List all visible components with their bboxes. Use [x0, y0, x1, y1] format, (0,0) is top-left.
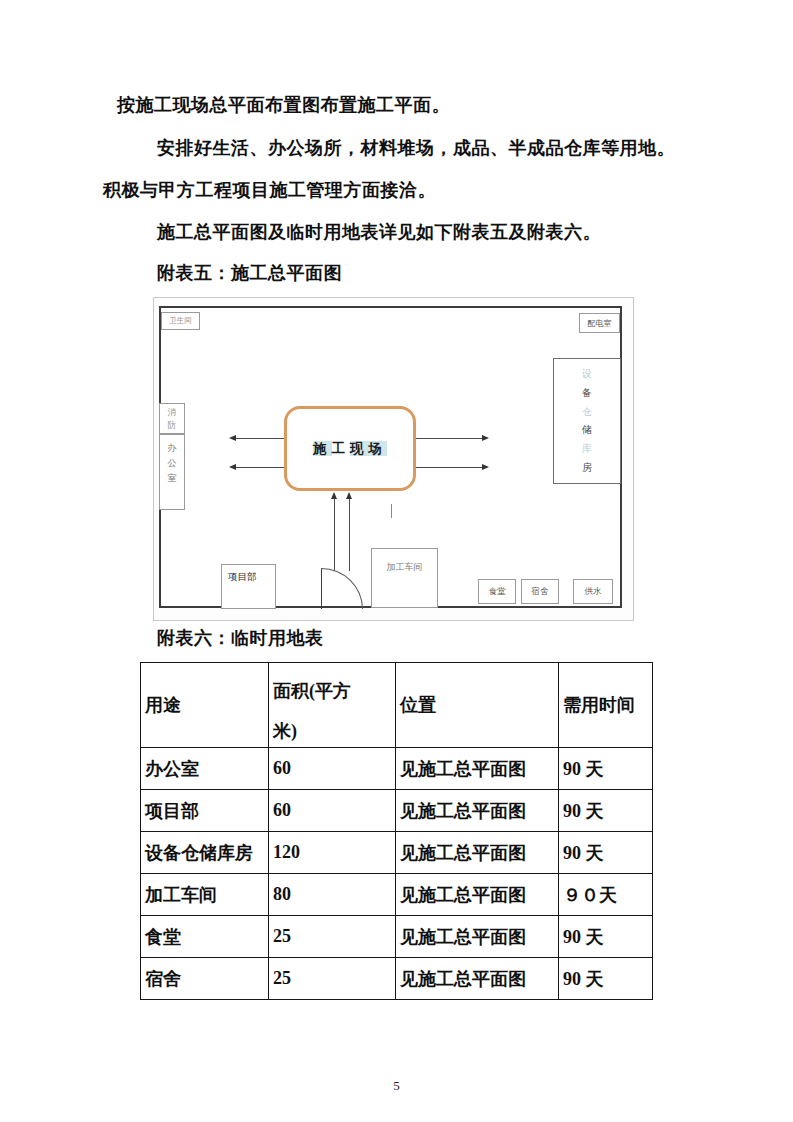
table-cell: 90 天 — [559, 832, 653, 874]
paragraph-2: 安排好生活、办公场所，材料堆场，成品、半成品仓库等用地。 — [103, 137, 757, 160]
up-arrow-right-line — [349, 498, 350, 571]
paragraph-1: 按施工现场总平面布置图布置施工平面。 — [103, 94, 717, 117]
toilet-box: 卫生间 — [161, 312, 200, 330]
table-header-cell: 位置 — [396, 663, 559, 748]
power-room-box: 配电室 — [579, 313, 620, 333]
construction-site-box: 施工现场 — [284, 406, 416, 491]
table-cell: 加工车间 — [141, 874, 269, 916]
table-cell: 项目部 — [141, 790, 269, 832]
table-cell: 80 — [269, 874, 396, 916]
storage-char: 备 — [582, 386, 592, 400]
canteen-label: 食堂 — [489, 586, 506, 598]
storage-char: 仓 — [582, 405, 592, 419]
entrance-door-arc — [321, 568, 363, 609]
paragraph-3: 积极与甲方工程项目施工管理方面接洽。 — [103, 179, 703, 202]
construction-site-label: 施工现场 — [313, 440, 387, 458]
canteen-box: 食堂 — [478, 579, 516, 604]
land-use-table: 用途 面积(平方米) 位置 需用时间 办公室 60 见施工总平面图 90 天 项… — [140, 662, 653, 1000]
right-arrow-bottom-line — [416, 467, 483, 468]
table-cell: 60 — [269, 748, 396, 790]
toilet-label: 卫生间 — [169, 316, 192, 326]
table-cell: 见施工总平面图 — [396, 832, 559, 874]
table-cell: 见施工总平面图 — [396, 916, 559, 958]
fire-protection-label: 消 防 — [168, 406, 177, 432]
table6-title: 附表六：临时用地表 — [157, 626, 324, 650]
workshop-box: 加工车间 — [371, 548, 438, 608]
storage-char: 储 — [582, 423, 592, 437]
up-arrow-left-head — [331, 492, 337, 499]
table-cell: 见施工总平面图 — [396, 874, 559, 916]
page-number: 5 — [0, 1078, 793, 1094]
water-supply-box: 供水 — [573, 579, 613, 604]
right-arrow-top-line — [416, 438, 483, 439]
left-arrow-bottom-line — [235, 467, 284, 468]
document-page: 按施工现场总平面布置图布置施工平面。 安排好生活、办公场所，材料堆场，成品、半成… — [0, 0, 793, 1122]
divider-tick — [391, 504, 392, 518]
storage-char: 库 — [582, 442, 592, 456]
water-supply-label: 供水 — [585, 586, 602, 598]
table-cell: 见施工总平面图 — [396, 958, 559, 1000]
fire-protection-box: 消 防 — [159, 403, 185, 434]
table-cell: 办公室 — [141, 748, 269, 790]
storage-char: 设 — [582, 367, 592, 381]
table-cell: 90 天 — [559, 748, 653, 790]
table-cell: 90 天 — [559, 958, 653, 1000]
project-dept-label: 项目部 — [228, 571, 257, 584]
table-cell: 90 天 — [559, 916, 653, 958]
table-cell: 见施工总平面图 — [396, 748, 559, 790]
equipment-storage-box: 设 备 仓 储 库 房 — [553, 358, 621, 484]
figure5-title: 附表五：施工总平面图 — [157, 261, 342, 285]
right-arrow-top-head — [482, 435, 489, 441]
table-cell: 食堂 — [141, 916, 269, 958]
paragraph-4: 施工总平面图及临时用地表详见如下附表五及附表六。 — [103, 221, 757, 244]
table-cell: 120 — [269, 832, 396, 874]
table-cell: 90 天 — [559, 790, 653, 832]
up-arrow-right-head — [346, 492, 352, 499]
table-cell: 宿舍 — [141, 958, 269, 1000]
left-arrow-top-line — [235, 438, 284, 439]
table-cell: 设备仓储库房 — [141, 832, 269, 874]
office-box: 办 公 室 — [159, 434, 185, 510]
table-cell: 60 — [269, 790, 396, 832]
dormitory-label: 宿舍 — [532, 586, 549, 598]
left-arrow-top-head — [229, 435, 236, 441]
site-plan-figure: 卫生间 配电室 设 备 仓 储 库 房 消 防 办 公 室 施工现场 — [153, 297, 634, 621]
table-cell: 25 — [269, 916, 396, 958]
table-cell: 见施工总平面图 — [396, 790, 559, 832]
storage-char: 房 — [582, 461, 592, 475]
site-plan-boundary: 卫生间 配电室 设 备 仓 储 库 房 消 防 办 公 室 施工现场 — [159, 306, 622, 608]
dormitory-box: 宿舍 — [521, 579, 559, 604]
workshop-label: 加工车间 — [387, 561, 423, 574]
table-header-cell: 用途 — [141, 663, 269, 748]
up-arrow-left-line — [334, 498, 335, 571]
table-header-cell: 需用时间 — [559, 663, 653, 748]
left-arrow-bottom-head — [229, 464, 236, 470]
table-cell: ９０天 — [559, 874, 653, 916]
right-arrow-bottom-head — [482, 464, 489, 470]
table-header-cell: 面积(平方米) — [269, 663, 396, 748]
office-label: 办 公 室 — [160, 441, 184, 486]
project-dept-box: 项目部 — [221, 564, 276, 609]
table-cell: 25 — [269, 958, 396, 1000]
power-room-label: 配电室 — [588, 318, 612, 329]
